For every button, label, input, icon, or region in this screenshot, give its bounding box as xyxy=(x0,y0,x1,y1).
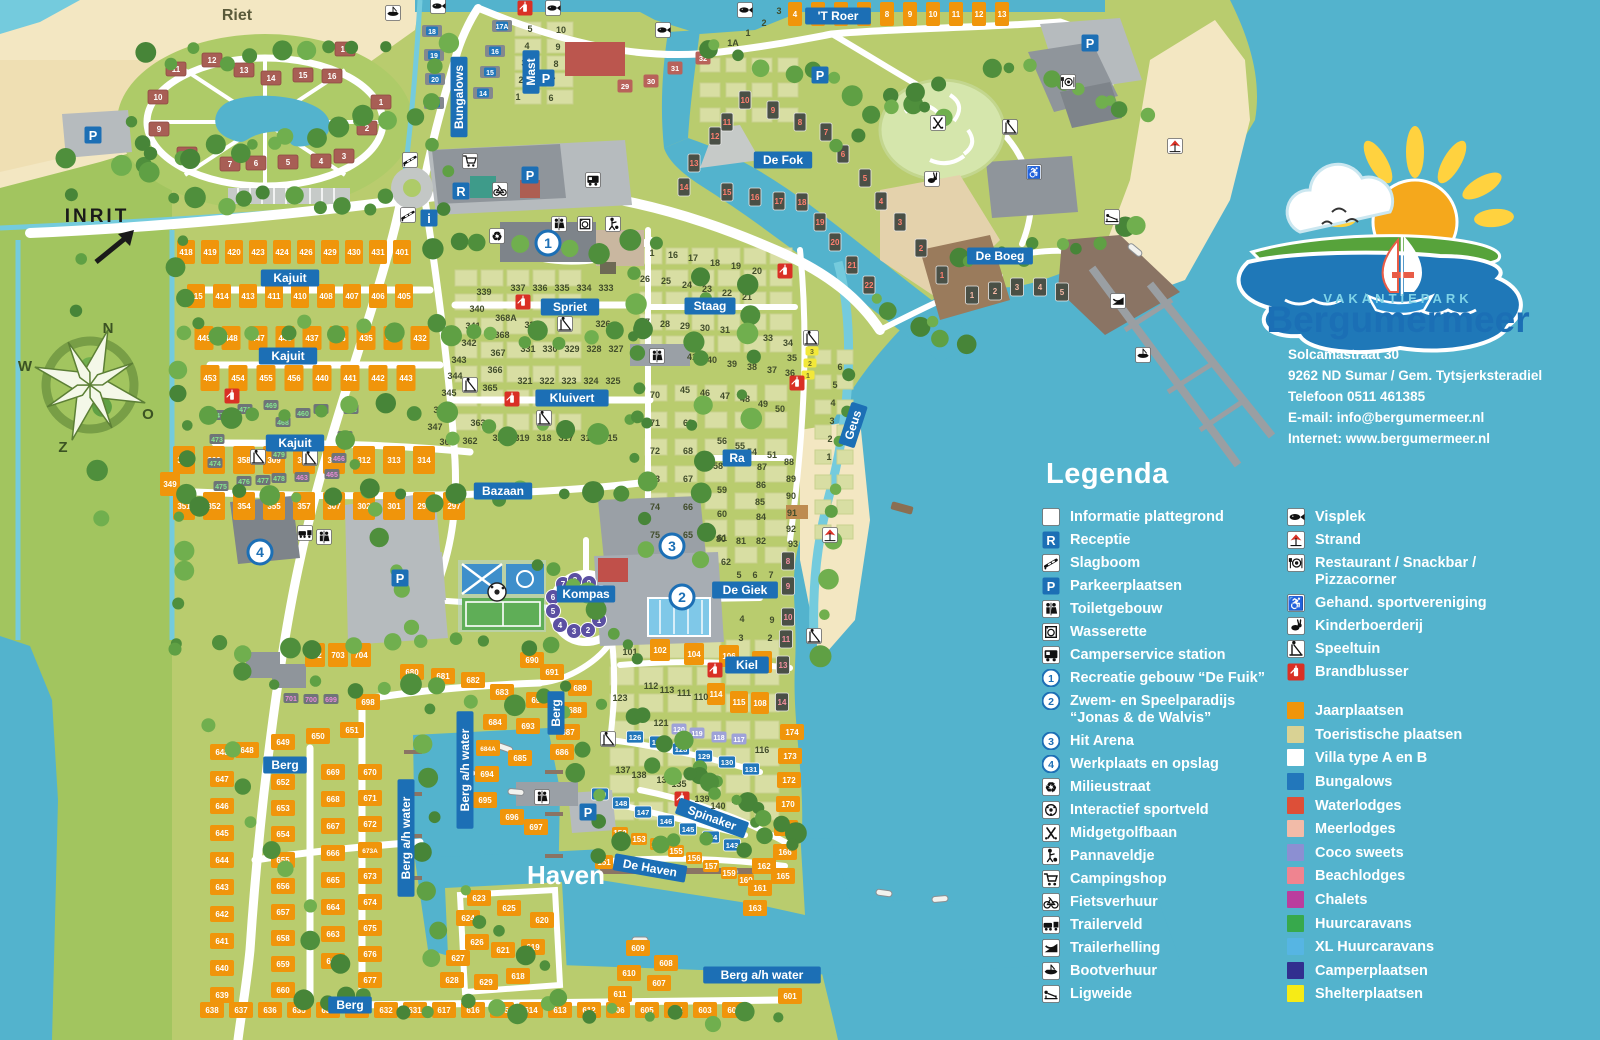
accommodation-label: Jaarplaatsen xyxy=(1315,701,1404,720)
plot-number: 1 xyxy=(649,248,654,258)
plot-number: 327 xyxy=(608,344,623,354)
plot-number: 80 xyxy=(716,534,726,544)
i-icon: i xyxy=(421,210,438,227)
svg-text:314: 314 xyxy=(417,456,431,465)
svg-text:660: 660 xyxy=(276,986,290,995)
svg-text:641: 641 xyxy=(215,937,229,946)
svg-text:613: 613 xyxy=(553,1006,567,1015)
svg-text:628: 628 xyxy=(445,976,459,985)
accommodation-label: Huurcaravans xyxy=(1315,914,1412,933)
color-swatch xyxy=(1287,915,1304,932)
svg-text:407: 407 xyxy=(345,292,359,301)
plot-group-berg_c2: 652653654655656657658659660 xyxy=(271,774,295,998)
plot-number: 56 xyxy=(717,436,727,446)
legend-item-label: Trailerhelling xyxy=(1070,938,1160,957)
svg-text:656: 656 xyxy=(276,882,290,891)
svg-text:609: 609 xyxy=(631,944,645,953)
svg-text:5: 5 xyxy=(1060,288,1065,297)
svg-text:4: 4 xyxy=(793,10,798,19)
plot-number: 92 xyxy=(786,524,796,534)
svg-text:3: 3 xyxy=(1048,736,1054,748)
svg-text:De Fok: De Fok xyxy=(763,153,803,167)
svg-text:664: 664 xyxy=(326,903,340,912)
svg-text:621: 621 xyxy=(496,946,510,955)
plot-number: 123 xyxy=(612,693,627,703)
svg-text:650: 650 xyxy=(311,732,325,741)
svg-text:423: 423 xyxy=(251,248,265,257)
plot-number: 25 xyxy=(661,276,671,286)
accommodation-label: Toeristische plaatsen xyxy=(1315,725,1462,744)
svg-text:414: 414 xyxy=(215,292,229,301)
street-sign-berg1: Berg xyxy=(548,691,565,735)
contact-website: Internet: www.bergumermeer.nl xyxy=(1288,428,1542,449)
svg-text:Kompas: Kompas xyxy=(562,587,610,601)
svg-text:699: 699 xyxy=(325,697,337,704)
logo-park-name: Bergumermeer xyxy=(1266,299,1529,340)
p-icon: P xyxy=(812,67,829,84)
svg-text:1: 1 xyxy=(544,235,552,251)
legend-item-right-3: ♿Gehand. sportvereniging xyxy=(1287,593,1598,616)
svg-text:413: 413 xyxy=(241,292,255,301)
svg-text:9: 9 xyxy=(157,125,162,134)
p-icon: P xyxy=(580,804,597,821)
plot-number: 24 xyxy=(682,280,692,290)
svg-text:3: 3 xyxy=(572,627,577,636)
svg-text:474: 474 xyxy=(209,461,221,468)
golf-icon xyxy=(931,116,946,131)
plot-number: 116 xyxy=(755,745,770,755)
bike-icon xyxy=(1042,893,1060,911)
legend-item-label: Hit Arena xyxy=(1070,731,1134,750)
svg-text:12: 12 xyxy=(711,132,720,141)
compass-w: W xyxy=(18,358,33,375)
wheel-icon: ♿ xyxy=(1287,594,1305,612)
slide-icon xyxy=(1288,641,1305,658)
svg-text:16: 16 xyxy=(328,72,337,81)
plot-number: 18 xyxy=(710,258,720,268)
slide-icon xyxy=(804,331,819,346)
ramp-icon xyxy=(1111,294,1126,309)
svg-text:683: 683 xyxy=(495,688,509,697)
legend-item-label: Recreatie gebouw “De Fuik” xyxy=(1070,668,1265,687)
svg-text:16: 16 xyxy=(751,193,760,202)
plot-number: 30 xyxy=(700,323,710,333)
svg-text:455: 455 xyxy=(259,374,273,383)
svg-text:358: 358 xyxy=(237,456,251,465)
barrier-icon xyxy=(1042,554,1060,572)
svg-text:696: 696 xyxy=(505,813,519,822)
legend-item-left-18: Trailerhelling xyxy=(1042,938,1292,961)
svg-text:6: 6 xyxy=(254,159,259,168)
color-swatch xyxy=(1287,867,1304,884)
svg-text:5: 5 xyxy=(551,607,556,616)
svg-text:14: 14 xyxy=(267,74,276,83)
plot-number: 75 xyxy=(650,530,660,540)
boat-icon xyxy=(1042,962,1060,980)
accommodation-row-4: Waterlodges xyxy=(1287,793,1598,817)
svg-text:8: 8 xyxy=(798,118,803,127)
ext-icon xyxy=(225,389,240,404)
svg-text:2: 2 xyxy=(586,626,591,635)
ext-icon xyxy=(505,392,520,407)
ext-icon xyxy=(708,663,723,678)
plot-number: 40 xyxy=(707,355,717,365)
svg-text:14: 14 xyxy=(479,91,487,98)
accommodation-label: Villa type A en B xyxy=(1315,748,1427,767)
svg-text:119: 119 xyxy=(691,731,702,738)
svg-text:639: 639 xyxy=(215,991,229,1000)
svg-text:Kajuit: Kajuit xyxy=(273,271,306,285)
legend-item-label: Ligweide xyxy=(1070,984,1132,1003)
legend-accommodations: JaarplaatsenToeristische plaatsenVilla t… xyxy=(1287,699,1598,1006)
accommodation-label: Meerlodges xyxy=(1315,819,1396,838)
svg-text:8: 8 xyxy=(885,10,890,19)
bike-icon xyxy=(1043,894,1060,911)
svg-text:R: R xyxy=(456,184,465,199)
ext-icon xyxy=(790,376,805,391)
svg-text:148: 148 xyxy=(615,799,628,808)
fish-icon xyxy=(738,3,753,18)
plot-number: 5 xyxy=(736,570,741,580)
legend-item-label: Werkplaats en opslag xyxy=(1070,754,1219,773)
svg-text:165: 165 xyxy=(776,872,790,881)
svg-text:108: 108 xyxy=(753,699,767,708)
rabbit-icon xyxy=(925,172,940,187)
svg-text:Mast: Mast xyxy=(524,58,538,85)
svg-text:301: 301 xyxy=(387,502,401,511)
plot-number: 6 xyxy=(752,570,757,580)
svg-text:16: 16 xyxy=(491,49,499,56)
svg-text:463: 463 xyxy=(296,475,308,482)
svg-text:466: 466 xyxy=(333,456,345,463)
p-icon: P xyxy=(85,127,102,144)
plot-number: 5 xyxy=(527,24,532,34)
plot-number: 342 xyxy=(461,338,476,348)
color-swatch xyxy=(1287,985,1304,1002)
legend-item-left-12: Interactief sportveld xyxy=(1042,800,1292,823)
svg-text:10: 10 xyxy=(741,96,750,105)
plot-number: 1 xyxy=(745,28,750,38)
rabbit-icon xyxy=(1287,617,1305,635)
svg-text:9: 9 xyxy=(786,582,791,591)
legend-item-label: Slagboom xyxy=(1070,553,1140,572)
plot-number: 340 xyxy=(469,304,484,314)
svg-text:12: 12 xyxy=(975,10,984,19)
r-icon: R xyxy=(453,183,470,200)
plot-number: 138 xyxy=(631,770,646,780)
plot-number: 34 xyxy=(783,338,793,348)
svg-text:666: 666 xyxy=(326,849,340,858)
svg-text:625: 625 xyxy=(502,904,516,913)
svg-text:653: 653 xyxy=(276,804,290,813)
legend-item-label: Wasserette xyxy=(1070,622,1147,641)
plot-number: 367 xyxy=(490,348,505,358)
ext-icon xyxy=(518,1,533,16)
svg-text:161: 161 xyxy=(753,884,767,893)
svg-text:14: 14 xyxy=(680,183,689,192)
svg-text:20: 20 xyxy=(831,238,840,247)
restaurant-icon xyxy=(1287,554,1305,572)
legend-item-right-5: Speeltuin xyxy=(1287,639,1598,662)
svg-text:4: 4 xyxy=(256,544,264,560)
plot-number: 368A xyxy=(495,313,517,323)
svg-text:117: 117 xyxy=(733,737,744,744)
legend-item-label: Restaurant / Snackbar / Pizzacorner xyxy=(1315,553,1476,589)
riet-label: Riet xyxy=(222,7,253,24)
plot-number: 82 xyxy=(756,536,766,546)
svg-text:118: 118 xyxy=(713,735,724,742)
plot-number: 328 xyxy=(586,344,601,354)
ext-icon xyxy=(778,264,793,279)
svg-text:146: 146 xyxy=(660,817,673,826)
cart-icon xyxy=(1042,870,1060,888)
svg-text:13: 13 xyxy=(240,66,249,75)
red-roof-building xyxy=(565,42,625,76)
svg-text:15: 15 xyxy=(486,70,494,77)
svg-text:667: 667 xyxy=(326,822,340,831)
svg-text:420: 420 xyxy=(227,248,241,257)
street-sign-kiel: Kiel xyxy=(725,657,769,674)
legend-item-label: Speeltuin xyxy=(1315,639,1380,658)
svg-text:659: 659 xyxy=(276,960,290,969)
svg-text:15: 15 xyxy=(299,71,308,80)
svg-text:674: 674 xyxy=(363,898,377,907)
svg-text:102: 102 xyxy=(653,646,667,655)
plot-number: 66 xyxy=(683,502,693,512)
accommodation-label: Beachlodges xyxy=(1315,866,1405,885)
svg-text:646: 646 xyxy=(215,802,229,811)
svg-text:454: 454 xyxy=(231,374,245,383)
parasol-icon xyxy=(1287,531,1305,549)
accommodation-row-6: Coco sweets xyxy=(1287,841,1598,865)
camper-icon xyxy=(1043,647,1060,664)
plot-number: 50 xyxy=(775,404,785,414)
c1-icon: 1 xyxy=(1042,669,1060,687)
accommodation-row-10: XL Huurcaravans xyxy=(1287,935,1598,959)
plot-number: 345 xyxy=(441,388,456,398)
accommodation-row-1: Toeristische plaatsen xyxy=(1287,723,1598,747)
svg-text:Berg a/h water: Berg a/h water xyxy=(458,728,472,811)
plot-number: 325 xyxy=(605,376,620,386)
svg-text:13: 13 xyxy=(998,10,1007,19)
svg-text:703: 703 xyxy=(331,651,345,660)
street-sign-spriet: Spriet xyxy=(541,299,599,316)
accommodation-label: Bungalows xyxy=(1315,772,1392,791)
parasol-icon xyxy=(1168,139,1183,154)
svg-text:677: 677 xyxy=(363,976,377,985)
contact-phone: Telefoon 0511 461385 xyxy=(1288,386,1542,407)
svg-text:130: 130 xyxy=(721,758,734,767)
trailer-icon xyxy=(298,526,313,541)
street-sign-berg2: Berg xyxy=(263,757,307,774)
plot-number: 62 xyxy=(721,557,731,567)
c3-icon: 3 xyxy=(1043,733,1060,750)
svg-text:349: 349 xyxy=(163,480,177,489)
street-sign-bergwater2: Berg a/h water xyxy=(398,779,415,897)
svg-text:9: 9 xyxy=(908,10,913,19)
svg-text:115: 115 xyxy=(733,698,746,707)
color-swatch xyxy=(1287,702,1304,719)
inrit-label: INRIT xyxy=(65,206,130,227)
svg-text:9: 9 xyxy=(771,106,776,115)
plot-number: 322 xyxy=(539,376,554,386)
legend-item-left-14: Pannaveldje xyxy=(1042,846,1292,869)
accommodation-label: Chalets xyxy=(1315,890,1367,909)
svg-text:♿: ♿ xyxy=(1027,166,1042,180)
plot-number: 1 xyxy=(515,92,520,102)
plot-number: 9 xyxy=(769,615,774,625)
plot-number: 47 xyxy=(720,391,730,401)
street-sign-bergwater3: Berg a/h water xyxy=(703,967,821,984)
wheel-icon: ♿ xyxy=(1288,595,1305,612)
svg-text:♿: ♿ xyxy=(1288,595,1305,611)
svg-text:14: 14 xyxy=(778,698,787,707)
recycle-icon: ♻ xyxy=(490,229,505,244)
slide-icon xyxy=(537,411,552,426)
svg-text:P: P xyxy=(584,805,593,820)
svg-text:12: 12 xyxy=(208,56,217,65)
svg-text:477: 477 xyxy=(257,478,269,485)
plot-number: 3 xyxy=(776,6,781,16)
svg-text:698: 698 xyxy=(361,698,375,707)
soccer-icon xyxy=(1042,801,1060,819)
color-swatch xyxy=(1287,820,1304,837)
svg-text:17: 17 xyxy=(775,197,784,206)
plot-number: 17 xyxy=(688,253,698,263)
svg-text:663: 663 xyxy=(326,930,340,939)
accommodation-label: Waterlodges xyxy=(1315,796,1401,815)
plot-number: 1 xyxy=(826,452,831,462)
legend-item-label: Midgetgolfbaan xyxy=(1070,823,1177,842)
plot-number: 2 xyxy=(761,18,766,28)
barrier-icon xyxy=(1043,555,1060,572)
svg-text:5: 5 xyxy=(863,174,868,183)
plot-number: 113 xyxy=(660,685,675,695)
legend-panel: Legenda Informatie plattegrondRReceptieS… xyxy=(1042,458,1598,507)
svg-text:4: 4 xyxy=(1038,283,1043,292)
svg-text:676: 676 xyxy=(363,950,377,959)
plot-number: 362 xyxy=(462,436,477,446)
plot-number: 324 xyxy=(583,376,598,386)
plot-group-berg_c4: 670671672673A673674675676677 xyxy=(358,764,382,988)
camper-icon xyxy=(1042,646,1060,664)
legend-item-left-4: Toiletgebouw xyxy=(1042,599,1292,622)
parasol-icon xyxy=(823,528,838,543)
p-icon: P xyxy=(522,167,539,184)
plot-number: 335 xyxy=(554,283,569,293)
svg-text:30: 30 xyxy=(647,77,655,86)
svg-text:Kluivert: Kluivert xyxy=(550,391,595,405)
legend-item-label: Brandblusser xyxy=(1315,662,1408,681)
svg-text:411: 411 xyxy=(268,292,281,301)
plot-number: 2 xyxy=(827,434,832,444)
svg-text:2: 2 xyxy=(993,287,998,296)
boat xyxy=(508,788,524,795)
legend-item-left-8: 2Zwem- en Speelparadijs “Jonas & de Walv… xyxy=(1042,691,1292,731)
plot-number: 139 xyxy=(694,794,709,804)
svg-text:157: 157 xyxy=(704,862,718,871)
svg-text:2: 2 xyxy=(1048,696,1054,708)
svg-text:3: 3 xyxy=(1015,283,1020,292)
plot-number: 333 xyxy=(598,283,613,293)
svg-text:♻: ♻ xyxy=(492,230,503,244)
svg-text:658: 658 xyxy=(276,934,290,943)
parasol-icon xyxy=(1288,532,1305,549)
street-sign-berg3: Berg xyxy=(328,997,372,1014)
svg-text:6: 6 xyxy=(551,593,556,602)
wc-icon xyxy=(317,530,332,545)
svg-text:18: 18 xyxy=(428,29,436,36)
plot-number: 3 xyxy=(738,633,743,643)
svg-text:645: 645 xyxy=(215,829,229,838)
svg-text:Kajuit: Kajuit xyxy=(278,436,311,450)
compass-o: O xyxy=(142,406,154,423)
plot-number: 3 xyxy=(829,416,834,426)
svg-text:430: 430 xyxy=(347,248,361,257)
golf-icon xyxy=(1042,824,1060,842)
svg-text:465: 465 xyxy=(326,472,338,479)
slide-icon xyxy=(558,317,573,332)
svg-text:644: 644 xyxy=(215,856,229,865)
svg-text:i: i xyxy=(427,211,431,226)
plot-number: 121 xyxy=(653,718,668,728)
svg-text:473: 473 xyxy=(211,437,223,444)
legend-item-right-4: Kinderboerderij xyxy=(1287,616,1598,639)
svg-text:15: 15 xyxy=(723,188,732,197)
svg-text:354: 354 xyxy=(237,502,251,511)
contact-email: E-mail: info@bergumermeer.nl xyxy=(1288,407,1542,428)
wc-icon xyxy=(552,217,567,232)
color-swatch xyxy=(1287,797,1304,814)
plot-number: 2 xyxy=(767,633,772,643)
park-map: 4567891011121341841942042342442642943043… xyxy=(0,0,1600,1040)
legend-item-left-10: 4Werkplaats en opslag xyxy=(1042,754,1292,777)
svg-text:13: 13 xyxy=(690,159,699,168)
svg-text:429: 429 xyxy=(323,248,337,257)
golf-icon xyxy=(1043,825,1060,842)
barrier-icon xyxy=(403,153,418,168)
svg-text:4: 4 xyxy=(879,197,884,206)
plot-number: 9 xyxy=(555,42,560,52)
color-swatch xyxy=(1287,962,1304,979)
svg-text:173: 173 xyxy=(783,752,797,761)
street-sign-deboeg: De Boeg xyxy=(967,248,1033,265)
svg-text:665: 665 xyxy=(326,876,340,885)
slide-icon xyxy=(601,732,616,747)
svg-text:10: 10 xyxy=(929,10,938,19)
p-icon: P xyxy=(538,70,555,87)
plot-number: 39 xyxy=(727,359,737,369)
svg-text:443: 443 xyxy=(399,374,413,383)
svg-text:162: 162 xyxy=(757,862,771,871)
svg-text:147: 147 xyxy=(637,808,650,817)
svg-text:603: 603 xyxy=(698,1006,712,1015)
svg-text:29: 29 xyxy=(621,82,629,91)
plot-number: 60 xyxy=(717,509,727,519)
svg-text:632: 632 xyxy=(379,1006,393,1015)
svg-text:610: 610 xyxy=(622,969,636,978)
wc-icon xyxy=(650,349,665,364)
svg-text:675: 675 xyxy=(363,924,377,933)
plot-number: 368 xyxy=(494,330,509,340)
svg-text:617: 617 xyxy=(437,1006,451,1015)
color-swatch xyxy=(1287,726,1304,743)
svg-text:686: 686 xyxy=(555,748,569,757)
fish-icon xyxy=(1287,508,1305,526)
svg-text:P: P xyxy=(89,128,98,143)
plot-number: 16 xyxy=(668,250,678,260)
building-marker-2: 2 xyxy=(670,585,694,609)
